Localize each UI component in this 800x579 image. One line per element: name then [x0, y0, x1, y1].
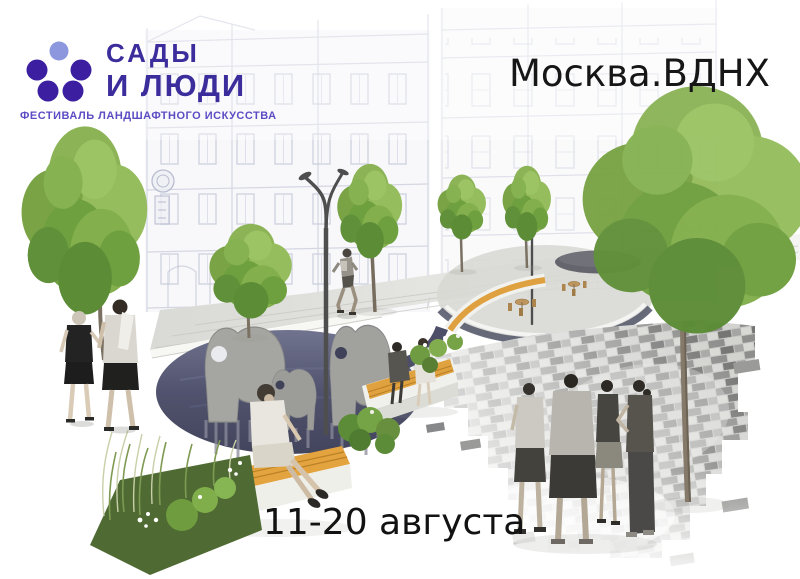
brand-tagline: ФЕСТИВАЛЬ ЛАНДШАФТНОГО ИСКУССТВА: [20, 110, 277, 122]
brand-title-line1: САДЫ: [106, 40, 246, 66]
logo-dot: [63, 81, 84, 102]
brand-title-line2: И ЛЮДИ: [106, 70, 246, 101]
logo-dot: [38, 81, 59, 102]
elephant-eye-hole: [276, 381, 285, 390]
five-dots-logo-icon: [22, 38, 104, 108]
logo-dot: [71, 60, 92, 81]
festival-poster: САДЫ И ЛЮДИ ФЕСТИВАЛЬ ЛАНДШАФТНОГО ИСКУС…: [0, 0, 800, 579]
brand-title: САДЫ И ЛЮДИ: [106, 40, 246, 101]
logo-dot: [27, 60, 48, 81]
logo-dot-light: [50, 42, 69, 61]
event-dates: 11-20 августа: [263, 503, 525, 543]
event-location: Москва.ВДНХ: [509, 54, 770, 95]
elephant-eye-hole: [335, 347, 347, 359]
elephant-eye-hole: [211, 346, 227, 362]
